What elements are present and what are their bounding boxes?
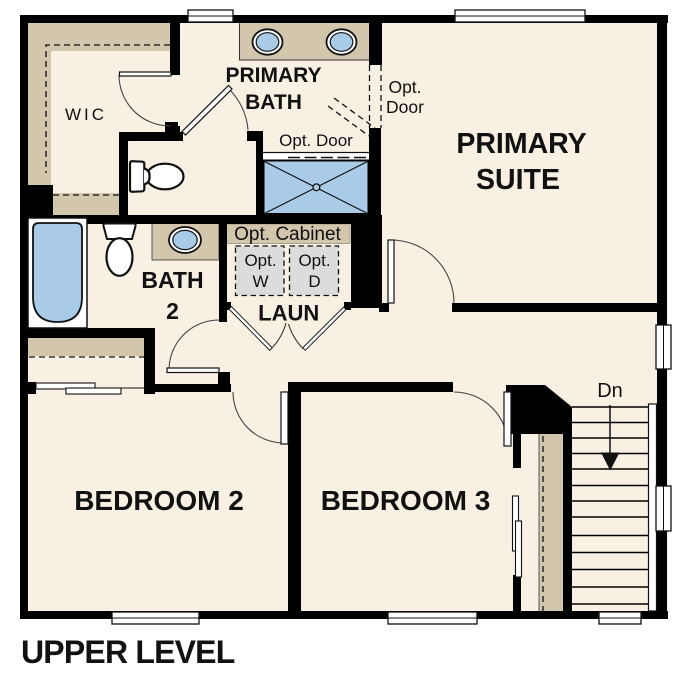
svg-text:Opt.: Opt.: [298, 251, 330, 270]
svg-text:BATH: BATH: [141, 267, 203, 293]
svg-text:W: W: [252, 272, 268, 291]
svg-text:Opt. Cabinet: Opt. Cabinet: [234, 224, 341, 245]
svg-text:PRIMARY: PRIMARY: [225, 64, 321, 87]
svg-text:BEDROOM 3: BEDROOM 3: [321, 485, 491, 516]
svg-text:UPPER LEVEL: UPPER LEVEL: [21, 634, 235, 670]
svg-text:Door: Door: [386, 97, 424, 117]
svg-text:2: 2: [166, 298, 179, 324]
svg-text:SUITE: SUITE: [476, 164, 560, 196]
svg-text:D: D: [308, 272, 320, 291]
svg-text:Opt.: Opt.: [244, 251, 276, 270]
svg-text:BEDROOM 2: BEDROOM 2: [74, 485, 244, 516]
svg-text:LAUN: LAUN: [258, 300, 319, 325]
svg-text:BATH: BATH: [245, 91, 302, 114]
svg-text:WIC: WIC: [65, 105, 107, 124]
svg-text:Opt. Door: Opt. Door: [279, 131, 353, 150]
svg-text:PRIMARY: PRIMARY: [456, 128, 586, 160]
svg-text:Dn: Dn: [597, 380, 623, 402]
svg-text:Opt.: Opt.: [388, 77, 421, 97]
